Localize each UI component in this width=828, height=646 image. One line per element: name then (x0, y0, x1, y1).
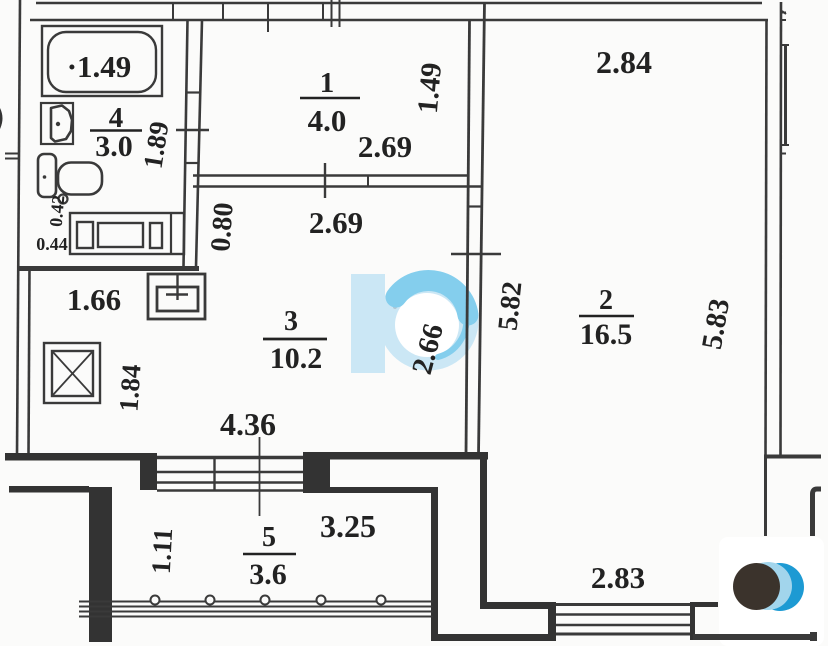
svg-text:2.84: 2.84 (596, 44, 652, 80)
svg-text:0.80: 0.80 (205, 202, 239, 253)
svg-text:3: 3 (284, 306, 298, 337)
svg-text:1: 1 (320, 67, 335, 99)
svg-text:5: 5 (262, 522, 276, 553)
svg-text:2.83: 2.83 (591, 560, 645, 595)
svg-text:1.49: 1.49 (412, 61, 448, 114)
svg-text:·1.49: ·1.49 (67, 49, 132, 84)
svg-text:5.82: 5.82 (493, 280, 529, 332)
svg-text:1.11: 1.11 (146, 527, 178, 574)
svg-text:16.5: 16.5 (580, 318, 633, 351)
svg-text:1.84: 1.84 (113, 363, 146, 412)
svg-text:0.42: 0.42 (46, 194, 69, 227)
svg-text:3.0: 3.0 (95, 130, 133, 163)
svg-text:3.6: 3.6 (249, 558, 287, 591)
svg-text:10.2: 10.2 (270, 342, 323, 375)
svg-text:4.36: 4.36 (220, 406, 276, 442)
svg-text:0.44: 0.44 (36, 234, 68, 254)
svg-text:2.69: 2.69 (309, 205, 363, 240)
svg-text:1.66: 1.66 (67, 282, 121, 317)
svg-text:2.69: 2.69 (358, 129, 412, 164)
svg-text:2: 2 (599, 285, 613, 316)
svg-text:3.25: 3.25 (320, 508, 376, 544)
svg-text:4.0: 4.0 (308, 103, 347, 138)
